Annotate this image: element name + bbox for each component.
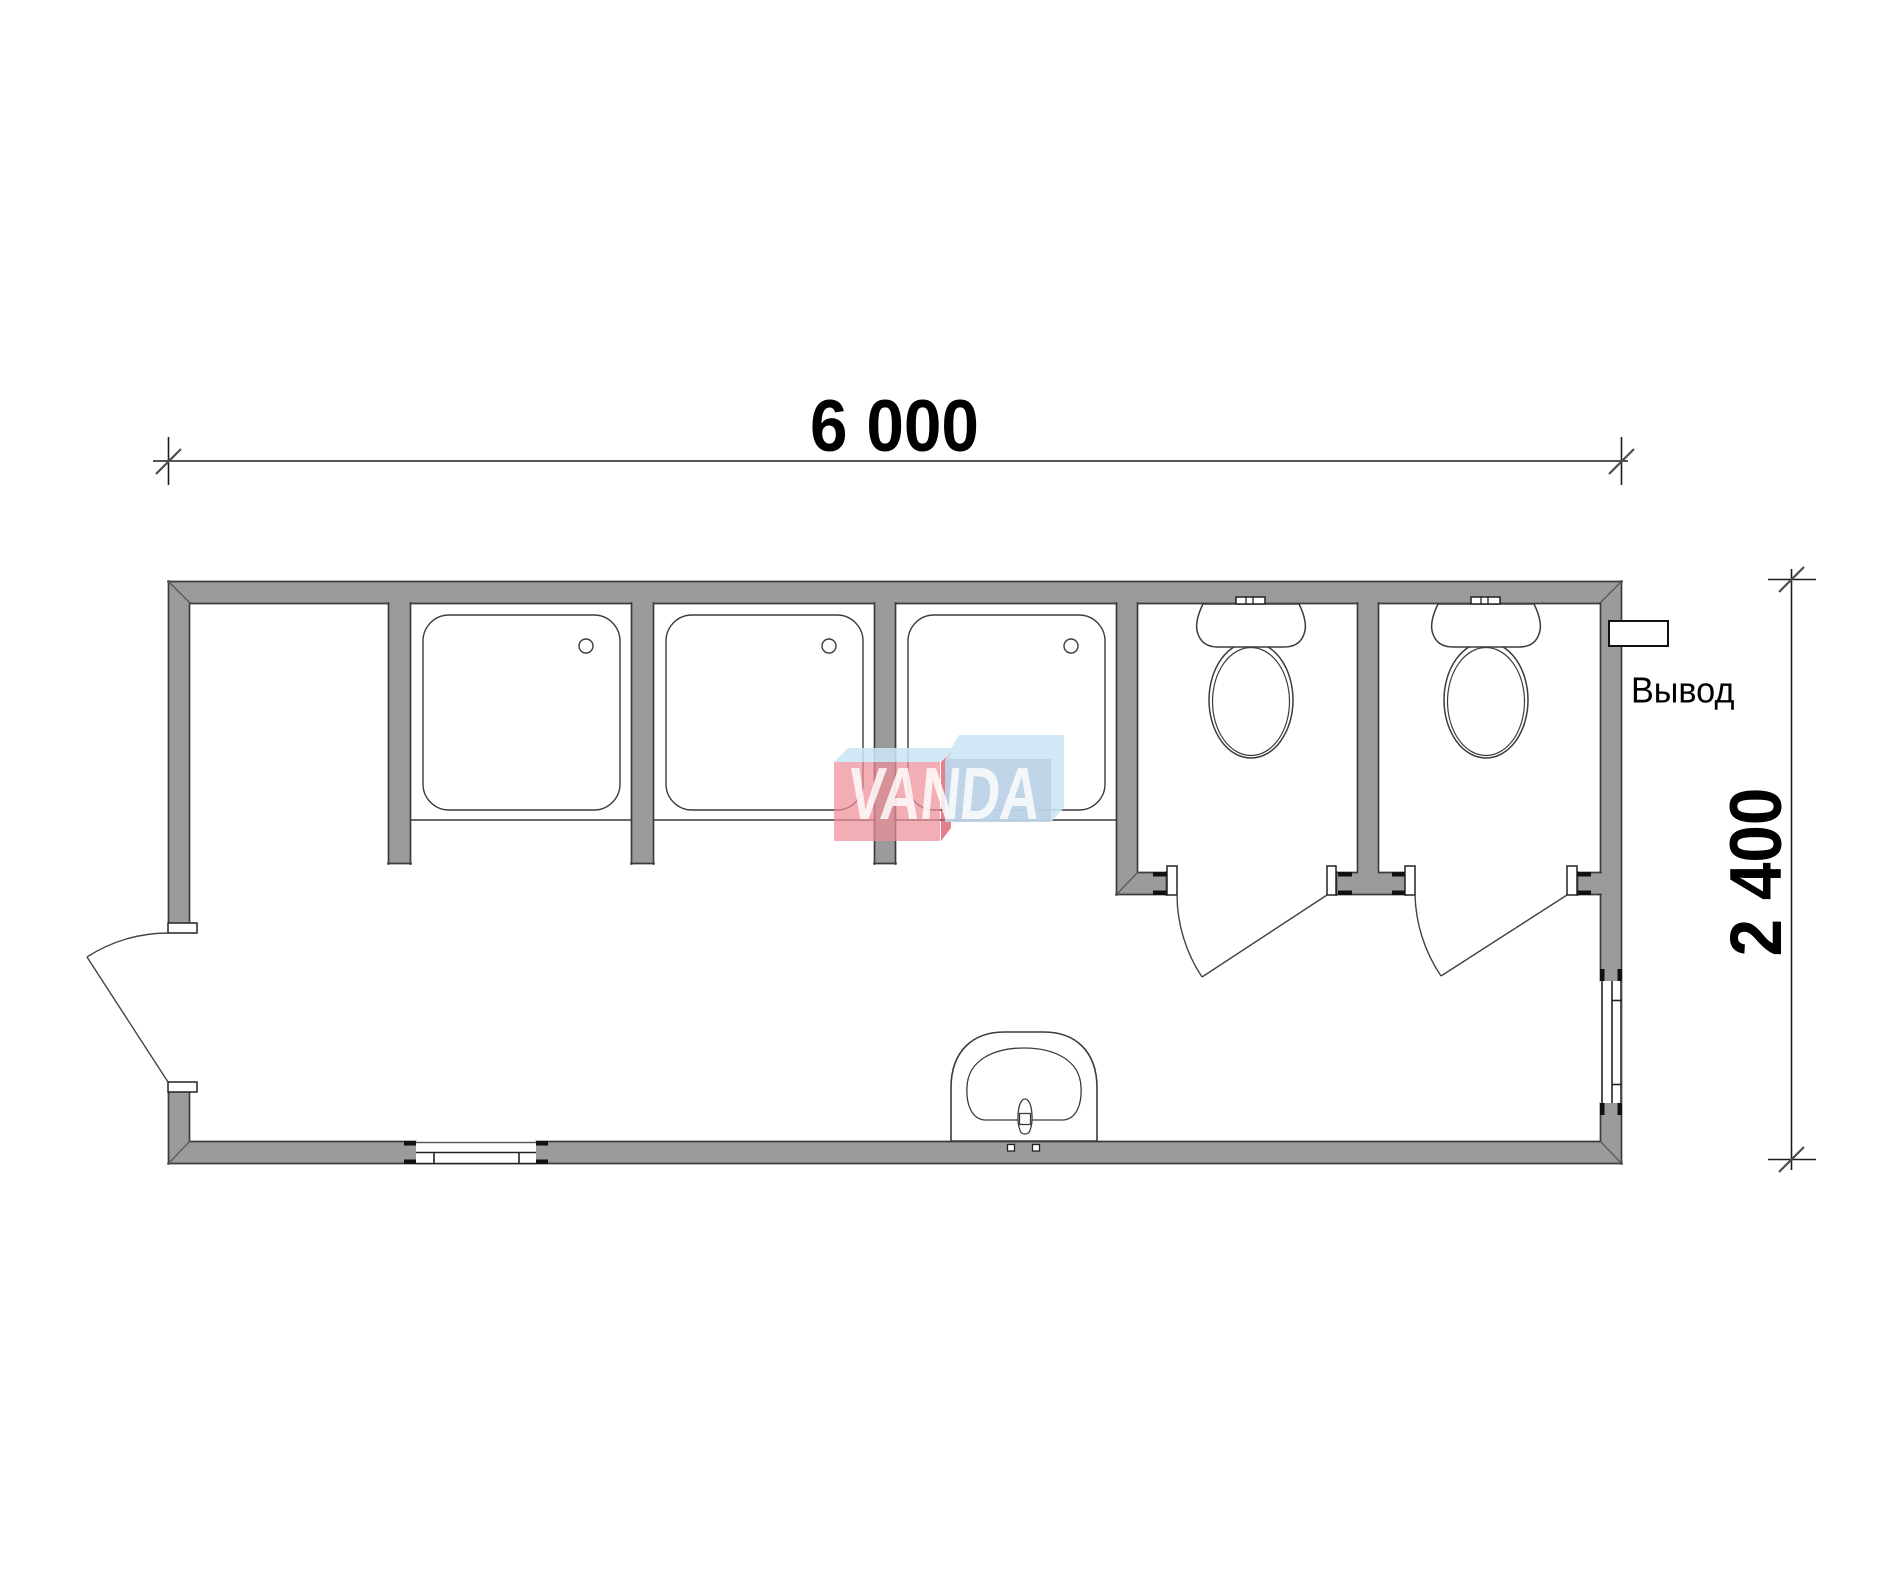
svg-text:Вывод: Вывод [1631, 671, 1734, 711]
svg-text:6 000: 6 000 [810, 385, 979, 467]
svg-text:VANDA: VANDA [845, 752, 1044, 835]
svg-text:2 400: 2 400 [1715, 788, 1797, 957]
